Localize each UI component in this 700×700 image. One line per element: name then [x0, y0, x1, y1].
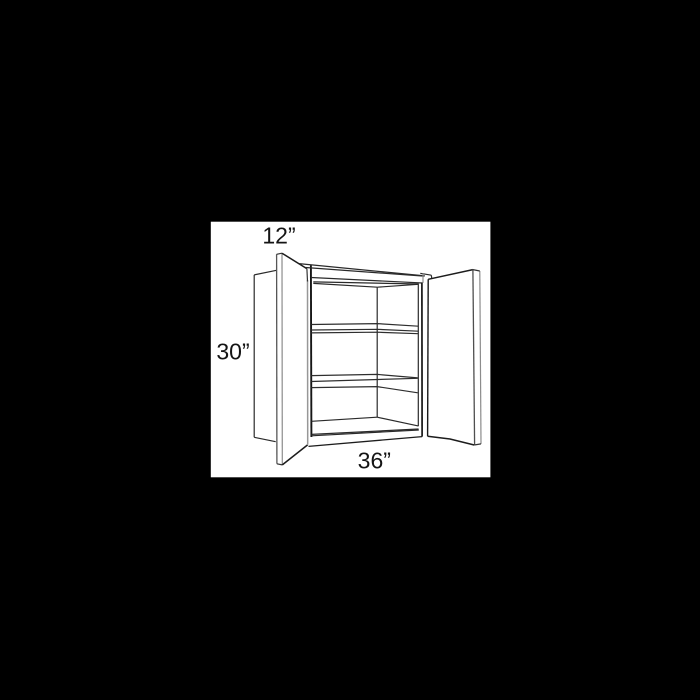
- svg-text:36”: 36”: [358, 447, 391, 473]
- svg-text:12”: 12”: [262, 223, 295, 249]
- svg-text:30”: 30”: [216, 339, 249, 365]
